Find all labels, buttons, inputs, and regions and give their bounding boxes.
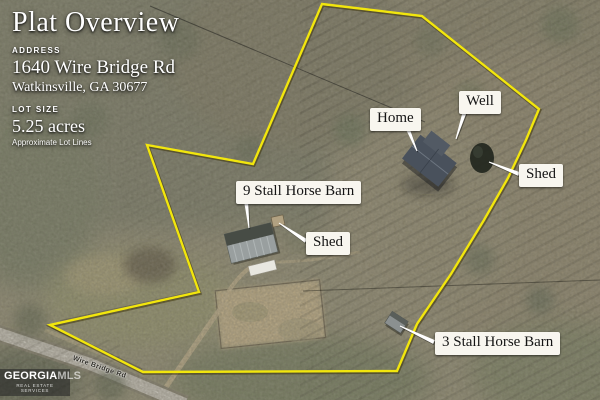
plat-overview-image: HomeWellShed9 Stall Horse BarnShed3 Stal… [0, 0, 600, 400]
map-label-barn-3-stall: 3 Stall Horse Barn [435, 332, 560, 355]
map-label-home: Home [370, 108, 421, 131]
map-label-well: Well [459, 91, 501, 114]
georgia-mls-watermark: GEORGIAMLS real estate services [0, 369, 70, 396]
watermark-tagline: real estate services [4, 383, 66, 393]
map-label-layer: HomeWellShed9 Stall Horse BarnShed3 Stal… [0, 0, 600, 400]
map-label-shed-barn: Shed [306, 232, 350, 255]
map-label-barn-9-stall: 9 Stall Horse Barn [236, 181, 361, 204]
map-label-shed-home: Shed [519, 164, 563, 187]
watermark-brand: GEORGIAMLS [4, 371, 66, 382]
